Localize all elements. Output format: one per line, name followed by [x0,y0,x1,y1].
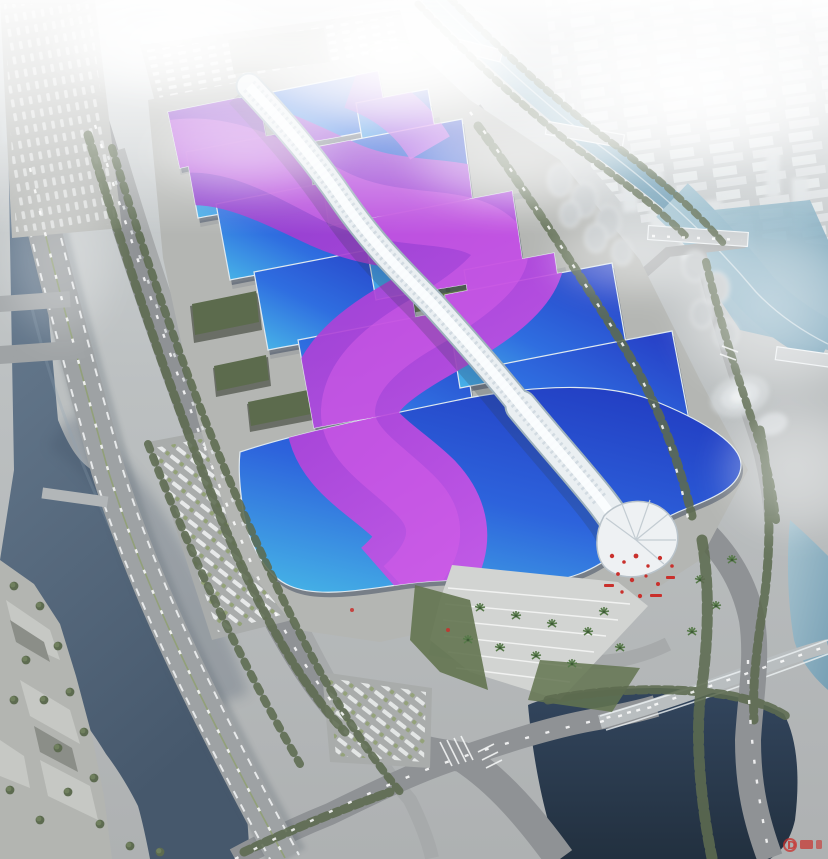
watermark-letter: D [787,839,796,852]
aerial-rendering: D [0,0,828,859]
south-entrance-shell [597,500,678,577]
scene-canvas: D [0,0,828,859]
